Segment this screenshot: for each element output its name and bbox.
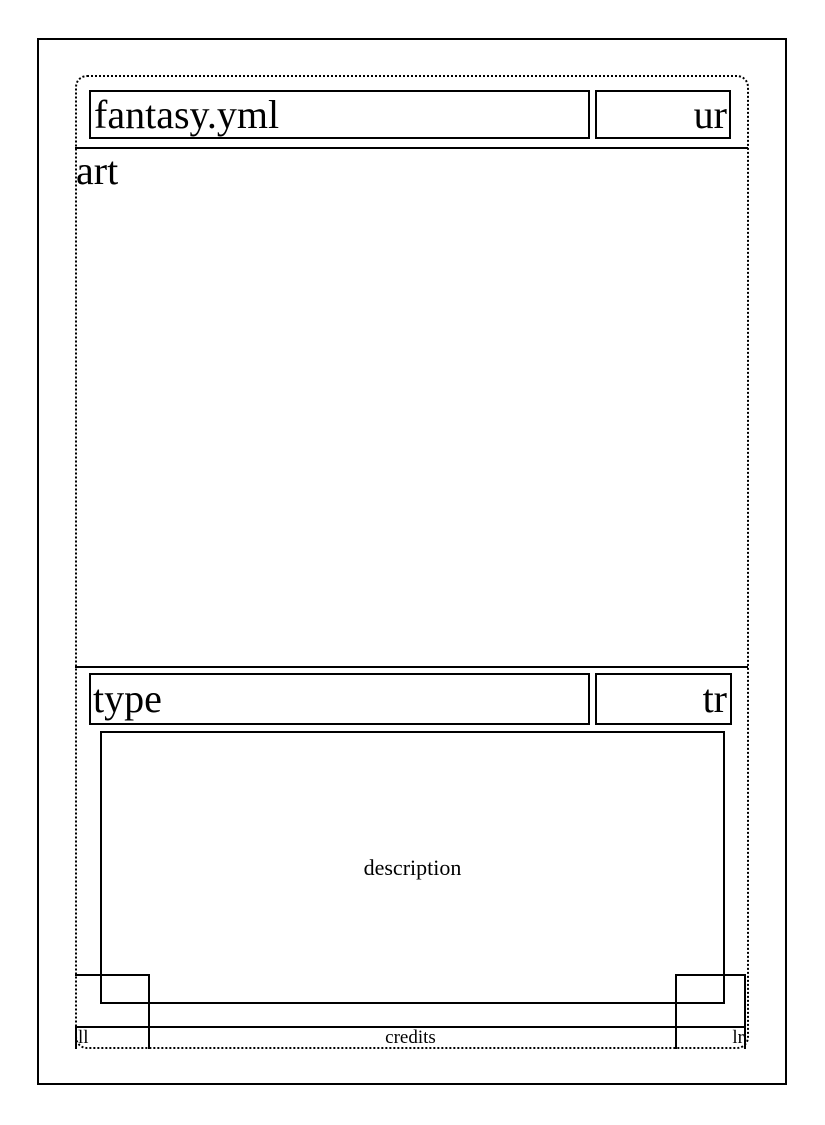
credits-bar: ll credits lr: [75, 1026, 746, 1049]
upper-right-box: ur: [595, 90, 731, 139]
type-box: type: [89, 673, 590, 725]
credits-text: credits: [77, 1028, 744, 1048]
title-text: fantasy.yml: [94, 92, 279, 137]
type-text: type: [93, 676, 162, 721]
description-text: description: [364, 855, 462, 881]
type-right-text: tr: [703, 676, 727, 721]
art-box: art: [75, 147, 748, 668]
description-box: description: [100, 731, 725, 1004]
lower-right-text: lr: [732, 1028, 744, 1048]
title-box: fantasy.yml: [89, 90, 590, 139]
art-label: art: [76, 148, 118, 193]
upper-right-text: ur: [694, 92, 727, 137]
card-template-preview: fantasy.yml ur art type tr description l…: [0, 0, 825, 1125]
type-right-box: tr: [595, 673, 732, 725]
